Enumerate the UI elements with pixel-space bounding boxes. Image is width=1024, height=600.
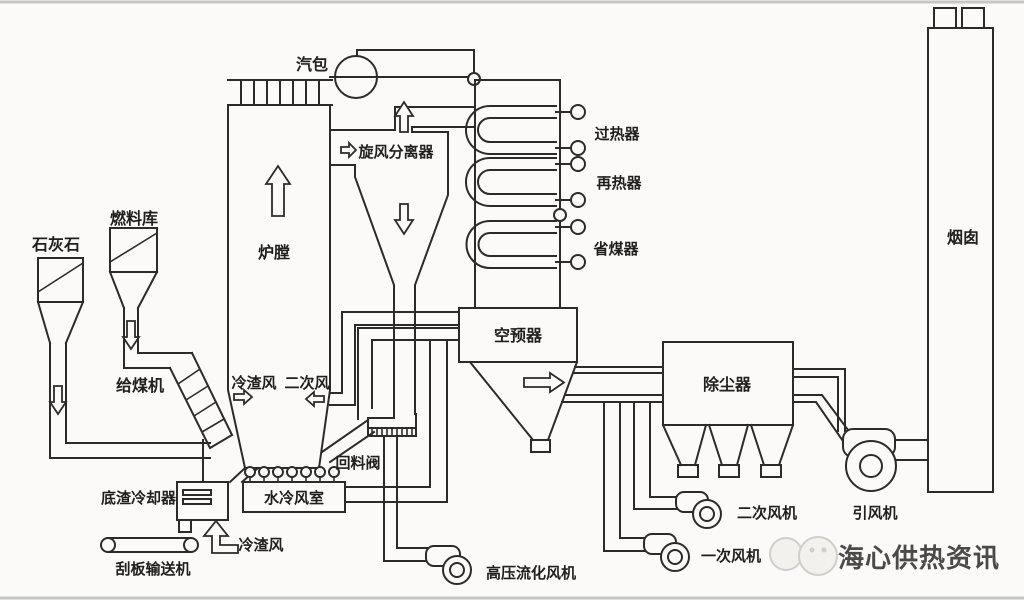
flow-arrow-up — [266, 166, 290, 216]
hp-fluidizing-fan — [426, 546, 471, 584]
header-circle — [571, 141, 585, 155]
steam-drum-label: 汽包 — [296, 55, 328, 74]
reheater-label: 再热器 — [596, 174, 642, 192]
secondary-air-arrow — [306, 392, 324, 406]
return-valve-label: 回料阀 — [335, 454, 380, 472]
cold-slag-air-bent-arrow — [204, 521, 238, 553]
limestone-label: 石灰石 — [31, 235, 80, 254]
primary-air-fan — [644, 534, 689, 571]
hp-fluidizing-fan-label: 高压流化风机 — [486, 564, 576, 582]
chimney — [928, 8, 993, 492]
header-circle — [571, 157, 585, 171]
flow-arrow-down — [123, 321, 139, 349]
watermark-text: 海心供热资讯 — [838, 543, 1000, 573]
watermark: 海心供热资讯 — [770, 537, 1000, 575]
header-circle — [571, 105, 585, 119]
cyclone-label: 旋风分离器 — [357, 143, 434, 161]
cold-slag-air-arrow — [234, 390, 252, 404]
scraper-conveyor-label: 刮板输送机 — [115, 560, 190, 578]
flue-flow-arrow — [524, 373, 564, 392]
cyclone-inlet-arrow — [341, 143, 356, 157]
induced-draft-fan-label: 引风机 — [852, 504, 897, 522]
header-circle — [571, 193, 585, 207]
flow-arrow-down — [50, 386, 66, 414]
dust-collector-label: 除尘器 — [703, 375, 752, 394]
secondary-air-fan — [676, 492, 721, 528]
steam-drum — [330, 50, 480, 98]
secondary-air-label: 二次风 — [284, 374, 329, 392]
backpass — [466, 80, 585, 308]
slag-cooler-label: 底渣冷却器 — [101, 489, 177, 507]
superheater-label: 过热器 — [594, 125, 640, 143]
watermark-bubble-icon — [799, 537, 837, 575]
fuel-bunker-label: 燃料库 — [110, 209, 158, 228]
header-circle — [571, 255, 585, 269]
header-circle — [571, 220, 585, 234]
secondary-air-fan-label: 二次风机 — [737, 504, 797, 522]
cold-slag-air-lower-label: 冷渣风 — [238, 536, 283, 554]
furnace — [228, 80, 332, 482]
coal-feeder-label: 给煤机 — [116, 376, 164, 395]
air-preheater-label: 空预器 — [494, 326, 543, 345]
cfb-boiler-diagram: 海心供热资讯 汽包 旋风分离器 炉膛 过热器 再热器 省煤器 空预器 除尘器 烟… — [0, 0, 1024, 600]
induced-draft-fan — [843, 429, 928, 491]
dust-collector — [663, 342, 793, 477]
windbox-nozzles — [245, 467, 339, 482]
windbox-label: 水冷风室 — [264, 489, 324, 507]
boiler-diagram-page: 海心供热资讯 汽包 旋风分离器 炉膛 过热器 再热器 省煤器 空预器 除尘器 烟… — [0, 0, 1024, 600]
watermark-bubble-icon — [770, 538, 802, 570]
primary-air-fan-label: 一次风机 — [701, 547, 761, 565]
fuel-bunker — [110, 228, 157, 353]
scraper-conveyor — [101, 538, 198, 552]
coal-feeder — [124, 353, 232, 482]
furnace-label: 炉膛 — [258, 243, 290, 262]
flow-arrow-down — [395, 204, 413, 234]
chimney-label: 烟囱 — [947, 228, 979, 247]
cold-slag-air-label: 冷渣风 — [231, 374, 276, 392]
economizer-label: 省煤器 — [592, 240, 639, 258]
wall-node — [554, 209, 566, 221]
